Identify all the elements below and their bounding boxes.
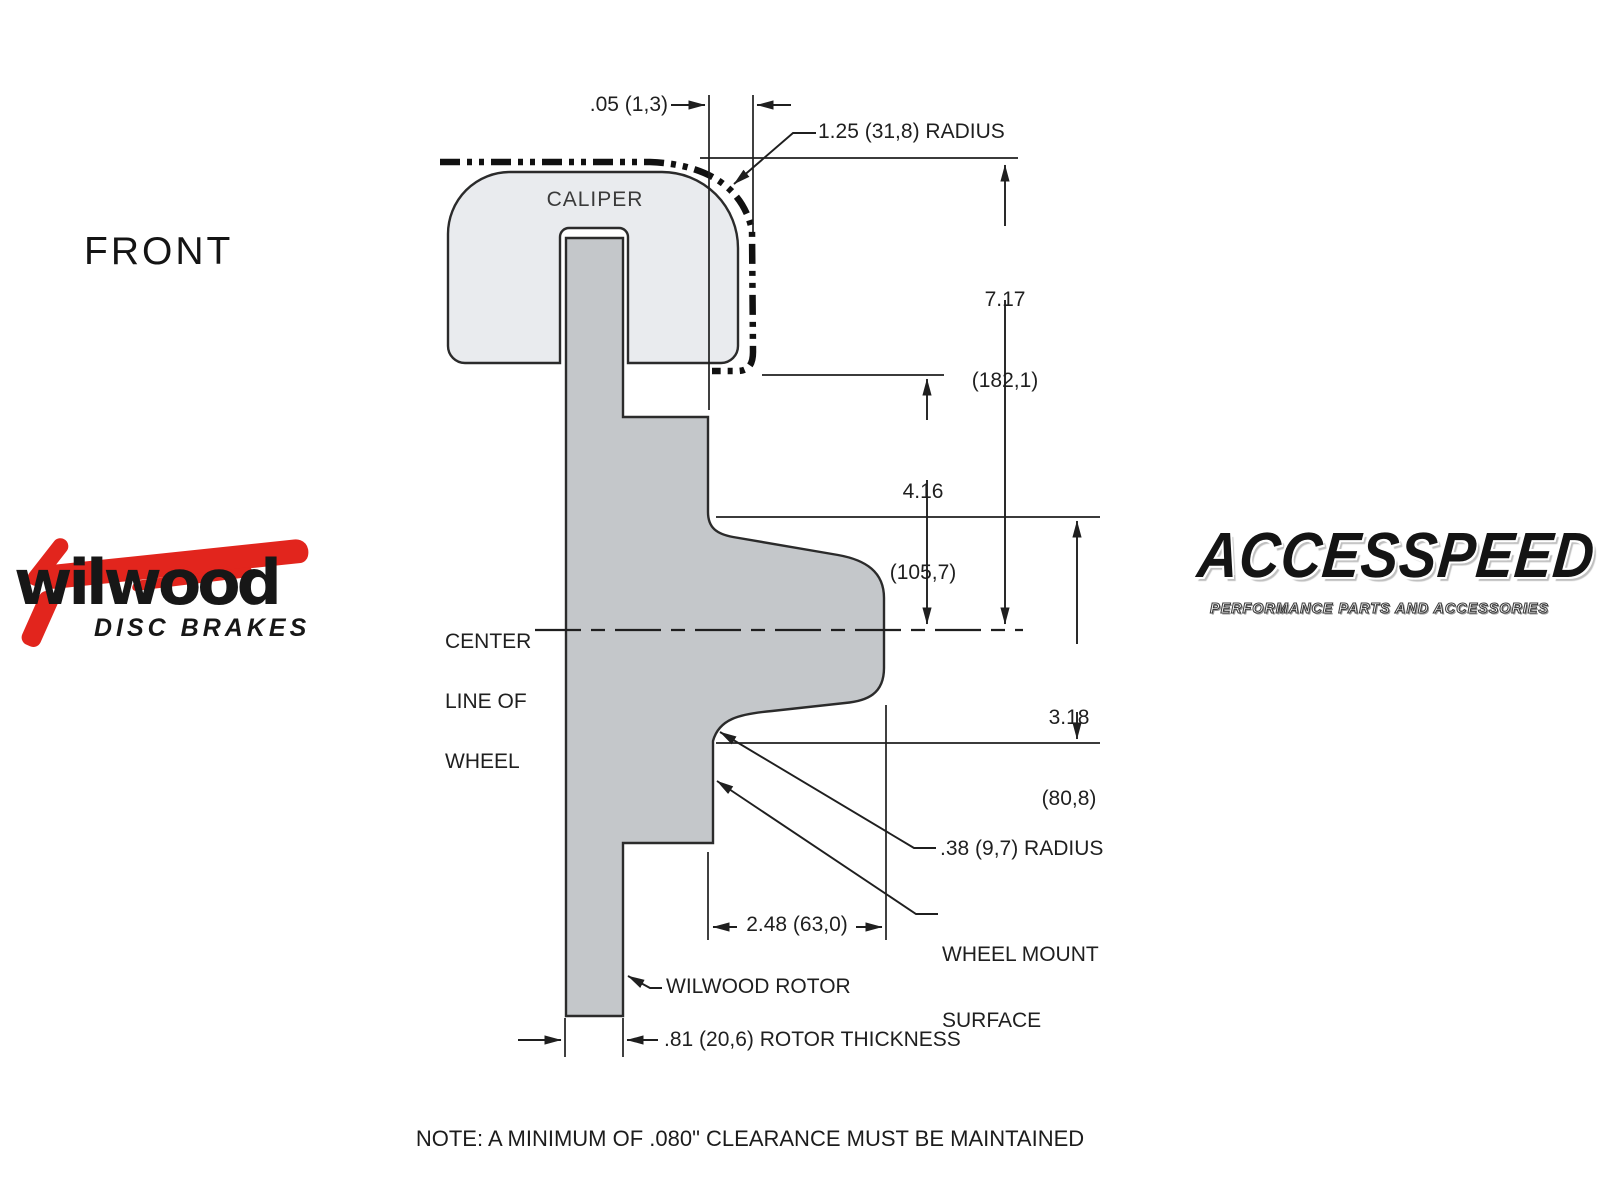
- dim-top-radius: 1.25 (31,8) RADIUS: [818, 120, 1005, 143]
- wilwood-logo: wilwood DISC BRAKES: [14, 538, 324, 650]
- clearance-note-line1: NOTE: A MINIMUM OF .080" CLEARANCE MUST …: [410, 1126, 1090, 1152]
- wilwood-logo-wordmark: wilwood: [14, 546, 278, 619]
- technical-drawing-page: FRONT CALIPER .05 (1,3) 1.25 (31,8) RADI…: [0, 0, 1600, 1200]
- dim-fillet-radius: .38 (9,7) RADIUS: [940, 837, 1103, 860]
- dim-rotor-thickness: .81 (20,6) ROTOR THICKNESS: [664, 1028, 961, 1051]
- accesspeed-logo: ACCESSPEED PERFORMANCE PARTS AND ACCESSO…: [1192, 518, 1582, 638]
- rotor-leader-label: WILWOOD ROTOR: [666, 975, 851, 998]
- dim-overall-height: 7.17 (182,1): [950, 232, 1060, 448]
- view-label-front: FRONT: [84, 240, 233, 263]
- centerline-label: CENTER LINE OF WHEEL: [445, 592, 531, 812]
- dim-overall-height-in: 7.17: [950, 286, 1060, 313]
- wilwood-logo-tagline: DISC BRAKES: [94, 614, 310, 643]
- clearance-note: NOTE: A MINIMUM OF .080" CLEARANCE MUST …: [410, 1074, 1090, 1200]
- dim-centerline-to-mount: 3.18 (80,8): [1014, 650, 1124, 866]
- accesspeed-logo-wordmark: ACCESSPEED: [1195, 518, 1599, 592]
- wheel-mount-surface-label: WHEEL MOUNT SURFACE: [942, 900, 1099, 1076]
- dim-caliper-to-centerline: 4.16 (105,7): [868, 424, 978, 640]
- dim-hat-depth: 2.48 (63,0): [727, 913, 867, 936]
- accesspeed-logo-tagline: PERFORMANCE PARTS AND ACCESSORIES: [1210, 600, 1549, 617]
- dim-centerline-to-mount-in: 3.18: [1014, 704, 1124, 731]
- dim-caliper-to-centerline-in: 4.16: [868, 478, 978, 505]
- dim-caliper-to-centerline-mm: (105,7): [868, 559, 978, 586]
- caliper-label: CALIPER: [540, 188, 650, 211]
- dim-caliper-clearance-gap: .05 (1,3): [568, 93, 668, 116]
- dim-centerline-to-mount-mm: (80,8): [1014, 785, 1124, 812]
- dim-overall-height-mm: (182,1): [950, 367, 1060, 394]
